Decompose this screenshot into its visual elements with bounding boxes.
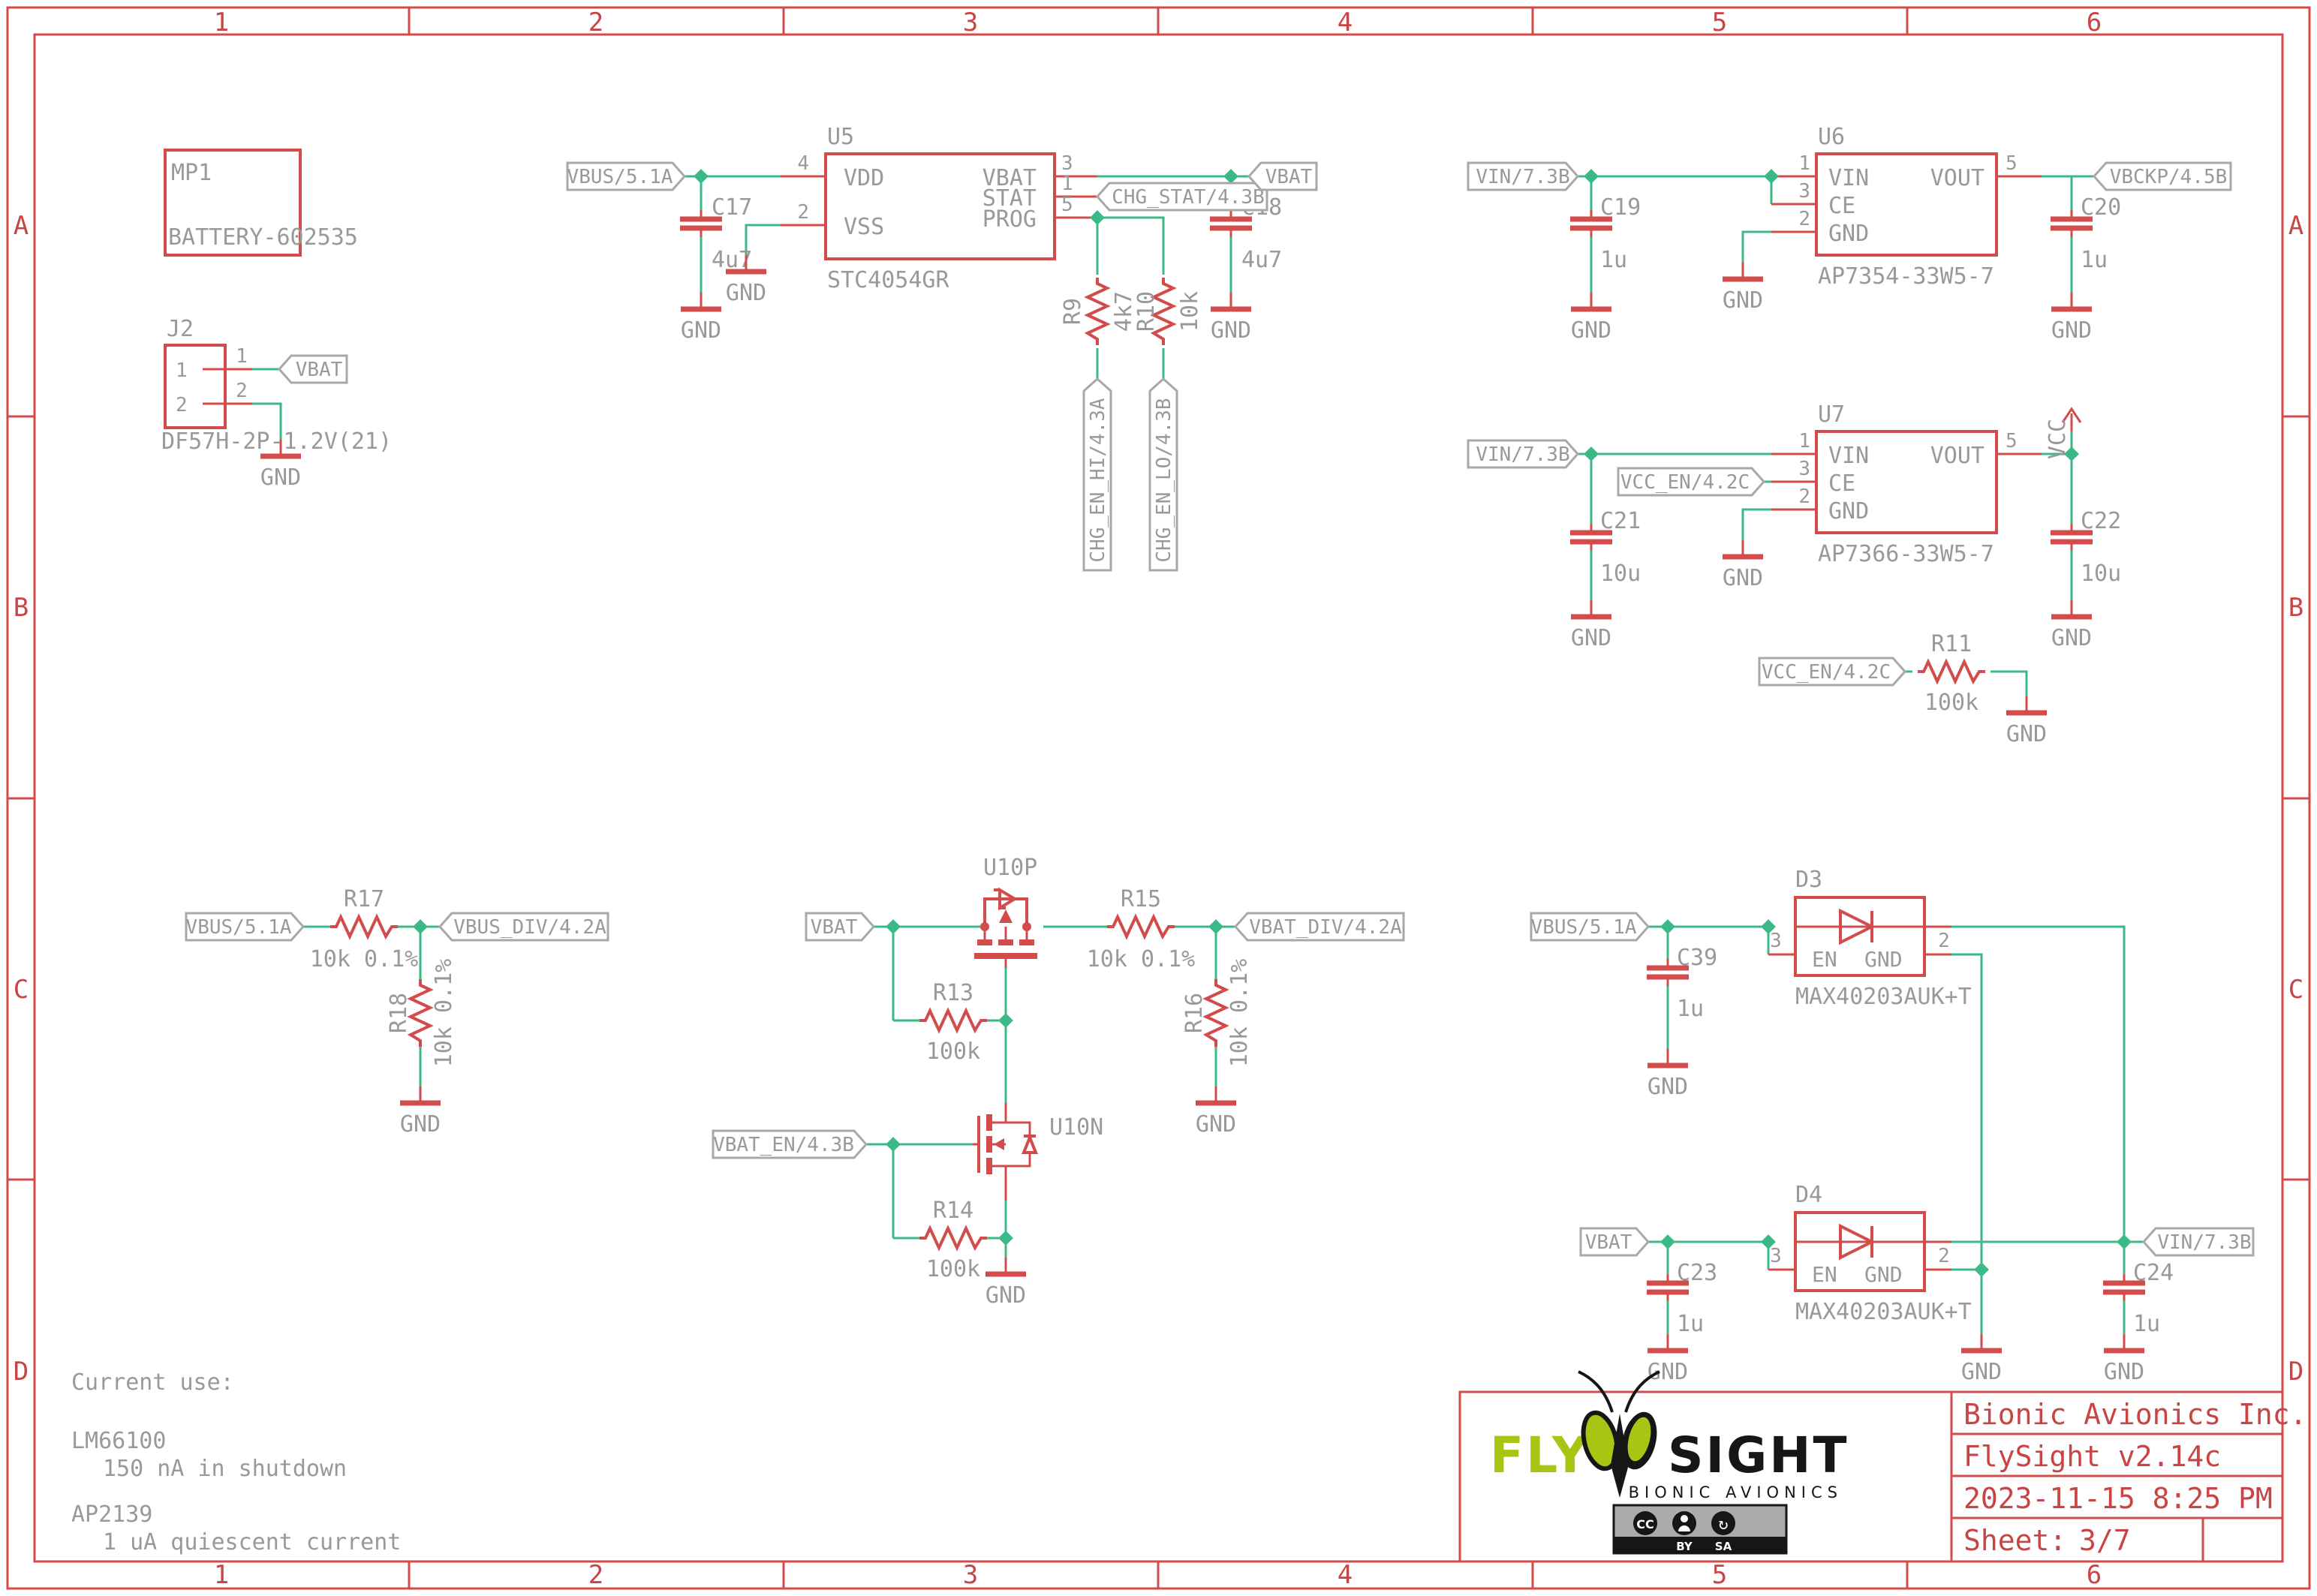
part-value: 10k 0.1% xyxy=(431,959,457,1068)
pin-name: EN xyxy=(1812,947,1837,972)
svg-text:GND: GND xyxy=(1647,1359,1688,1385)
grid-col-label: 3 xyxy=(963,8,978,38)
component-r11[interactable]: R11 100k xyxy=(1918,631,1985,716)
part-value: 10k 0.1% xyxy=(1226,959,1253,1068)
gnd-power-symbol: GND xyxy=(1571,293,1611,344)
gnd-power-symbol: GND xyxy=(2051,293,2092,344)
grid-col-label: 6 xyxy=(2087,8,2102,38)
net-flag-vin: VIN/7.3B xyxy=(2144,1228,2253,1255)
part-value: 10k xyxy=(1177,291,1203,332)
wire-segments[interactable] xyxy=(252,176,2144,1334)
pin-number: 1 xyxy=(1798,152,1810,175)
component-r10[interactable]: R10 10k xyxy=(1133,278,1203,345)
ref-designator: C19 xyxy=(1600,194,1641,221)
gnd-power-symbol: GND xyxy=(2051,600,2092,651)
net-flag-vbus-div: VBUS_DIV/4.2A xyxy=(440,913,608,940)
grid-col-label: 6 xyxy=(2087,1560,2102,1590)
part-value: STC4054GR xyxy=(827,267,949,293)
net-flag-vbat-en: VBAT_EN/4.3B xyxy=(713,1131,866,1158)
net-flag-vin: VIN/7.3B xyxy=(1468,163,1578,190)
part-value: 10k 0.1% xyxy=(1087,946,1196,972)
svg-text:GND: GND xyxy=(260,464,301,491)
pin-name: CE xyxy=(1828,193,1855,219)
pin-name: VOUT xyxy=(1930,443,1984,469)
net-flag-chg-en-lo: CHG_EN_LO/4.3B xyxy=(1150,379,1177,570)
grid-col-label: 4 xyxy=(1338,1560,1353,1590)
gnd-power-symbol: GND xyxy=(1723,540,1763,591)
grid-col-label: 1 xyxy=(214,1560,229,1590)
svg-text:VBUS/5.1A: VBUS/5.1A xyxy=(1531,916,1637,939)
svg-text:VBAT: VBAT xyxy=(1585,1231,1632,1254)
part-value: DF57H-2P-1.2V(21) xyxy=(161,428,392,455)
grid-col-label: 5 xyxy=(1712,1560,1727,1590)
part-value: 10k 0.1% xyxy=(310,946,419,972)
net-flag-vbus: VBUS/5.1A xyxy=(567,163,685,190)
ref-designator: D4 xyxy=(1795,1182,1822,1208)
grid-col-label: 2 xyxy=(588,8,603,38)
component-r17[interactable]: R17 10k 0.1% xyxy=(310,886,419,972)
mantis-icon xyxy=(1578,1372,1661,1498)
grid-col-label: 1 xyxy=(214,8,229,38)
pin-number: 3 xyxy=(1798,180,1810,203)
part-value: 4u7 xyxy=(1241,247,1282,273)
part-value: MAX40203AUK+T xyxy=(1795,984,1972,1010)
pin-name: VDD xyxy=(844,165,884,191)
svg-text:GND: GND xyxy=(1211,317,1251,344)
note-detail: 1 uA quiescent current xyxy=(103,1529,401,1555)
part-value: 1u xyxy=(1677,1311,1704,1337)
pin-name: GND xyxy=(1828,498,1869,524)
pin-number: 5 xyxy=(2006,152,2018,175)
ref-designator: R15 xyxy=(1121,886,1161,912)
ref-designator: R11 xyxy=(1931,631,1972,657)
pin-name: PROG xyxy=(982,206,1037,233)
component-d3-ideal-diode[interactable]: D3 MAX40203AUK+T EN GND 3 2 xyxy=(1770,867,1972,1010)
ref-designator: U5 xyxy=(827,124,854,150)
pin-name: VIN xyxy=(1828,443,1869,469)
grid-row-label: D xyxy=(2288,1357,2303,1387)
gnd-power-symbol: GND xyxy=(2006,696,2047,747)
ref-designator: C17 xyxy=(712,194,752,221)
ref-designator: MP1 xyxy=(171,160,212,186)
svg-text:CHG_EN_LO/4.3B: CHG_EN_LO/4.3B xyxy=(1153,398,1175,562)
pin-number: 5 xyxy=(1061,194,1073,216)
ref-designator: U6 xyxy=(1818,124,1845,150)
component-u10n-nfet[interactable]: U10N xyxy=(979,1114,1103,1193)
svg-text:GND: GND xyxy=(681,317,721,344)
gnd-power-symbol: GND xyxy=(1723,263,1763,314)
svg-text:GND: GND xyxy=(2006,721,2047,747)
svg-text:VBAT: VBAT xyxy=(1265,166,1313,188)
part-value: BATTERY-602535 xyxy=(168,224,358,251)
gnd-power-symbol: GND xyxy=(1961,1334,2002,1385)
gnd-power-symbol: GND xyxy=(2104,1334,2144,1385)
grid-col-label: 3 xyxy=(963,1560,978,1590)
pin-number: 3 xyxy=(1770,930,1782,952)
net-flag-vbckp: VBCKP/4.5B xyxy=(2094,163,2231,190)
pin-number: 2 xyxy=(1938,930,1950,952)
project-name: FlySight v2.14c xyxy=(1963,1440,2221,1473)
svg-text:VBCKP/4.5B: VBCKP/4.5B xyxy=(2110,166,2228,188)
grid-col-label: 5 xyxy=(1712,8,1727,38)
svg-text:VBUS/5.1A: VBUS/5.1A xyxy=(567,166,673,188)
grid-row-label: D xyxy=(14,1357,29,1387)
pin-number: 2 xyxy=(1798,485,1810,508)
svg-text:VCC_EN/4.2C: VCC_EN/4.2C xyxy=(1620,471,1750,494)
gnd-power-symbol: GND xyxy=(681,293,721,344)
ref-designator: U10N xyxy=(1049,1114,1103,1141)
by-label: BY xyxy=(1676,1540,1693,1553)
svg-text:VBAT_EN/4.3B: VBAT_EN/4.3B xyxy=(713,1134,854,1156)
part-value: 100k xyxy=(926,1038,980,1065)
svg-text:VBAT_DIV/4.2A: VBAT_DIV/4.2A xyxy=(1249,916,1402,939)
part-value: 10u xyxy=(2081,561,2121,587)
gnd-power-symbol: GND xyxy=(1571,600,1611,651)
gnd-power-symbol: GND xyxy=(985,1258,1026,1309)
svg-text:GND: GND xyxy=(1571,625,1611,651)
component-c21[interactable]: C21 10u xyxy=(1570,508,1641,587)
cc-by-sa-badge: CC ↻ BY SA xyxy=(1614,1505,1786,1553)
sheet-number: 3/7 xyxy=(2079,1524,2131,1557)
net-flag-vbat-div: VBAT_DIV/4.2A xyxy=(1235,913,1404,940)
pin-number: 5 xyxy=(2006,430,2018,452)
gnd-power-symbol: GND xyxy=(1647,1049,1688,1100)
svg-text:GND: GND xyxy=(1196,1111,1236,1138)
pin-name: CE xyxy=(1828,470,1855,497)
svg-text:GND: GND xyxy=(1723,565,1763,591)
logo-sight-text: SIGHT xyxy=(1668,1426,1849,1484)
by-person-icon xyxy=(1672,1511,1696,1535)
grid-row-label: B xyxy=(2288,593,2303,623)
ref-designator: R18 xyxy=(386,993,412,1033)
component-c17[interactable]: C17 4u7 xyxy=(680,194,752,273)
junction-dots xyxy=(413,169,2132,1277)
logo-fly-text: FLY xyxy=(1490,1426,1590,1484)
schematic-canvas: 1 2 3 4 5 6 1 2 3 4 5 6 A B C D A B C D xyxy=(0,0,2317,1596)
component-c24[interactable]: C24 1u xyxy=(2103,1260,2174,1337)
net-flag-chg-en-hi: CHG_EN_HI/4.3A xyxy=(1084,379,1111,570)
svg-text:GND: GND xyxy=(2051,625,2092,651)
svg-text:GND: GND xyxy=(400,1111,441,1138)
svg-text:CHG_EN_HI/4.3A: CHG_EN_HI/4.3A xyxy=(1087,398,1109,562)
pin-name: 2 xyxy=(176,394,188,416)
pin-number: 1 xyxy=(1798,430,1810,452)
svg-text:GND: GND xyxy=(2104,1359,2144,1385)
component-c23[interactable]: C23 1u xyxy=(1647,1260,1717,1337)
component-r15[interactable]: R15 10k 0.1% xyxy=(1087,886,1196,972)
gnd-power-symbol: GND xyxy=(1211,293,1251,344)
cc-icon-text: CC xyxy=(1636,1517,1653,1531)
component-c19[interactable]: C19 1u xyxy=(1570,194,1641,273)
pin-name: GND xyxy=(1864,1262,1903,1287)
svg-text:GND: GND xyxy=(2051,317,2092,344)
component-mp1-battery[interactable]: MP1 BATTERY-602535 xyxy=(165,150,358,255)
ref-designator: C23 xyxy=(1677,1260,1717,1286)
component-u7-ldo[interactable]: U7 AP7366-33W5-7 VIN CE GND VOUT 1 3 2 5 xyxy=(1798,401,2017,567)
svg-text:VBUS_DIV/4.2A: VBUS_DIV/4.2A xyxy=(453,916,606,939)
grid-col-label: 2 xyxy=(588,1560,603,1590)
note-part: AP2139 xyxy=(71,1501,152,1528)
ref-designator: C22 xyxy=(2081,508,2121,534)
notes-block: Current use: LM66100 150 nA in shutdown … xyxy=(71,1369,401,1555)
ref-designator: J2 xyxy=(167,316,194,342)
grid-row-label: A xyxy=(14,211,29,241)
svg-text:GND: GND xyxy=(1571,317,1611,344)
net-label: VCC xyxy=(2045,419,2071,459)
net-flag-vbus: VBUS/5.1A xyxy=(1531,913,1648,940)
net-flag-vcc-en: VCC_EN/4.2C xyxy=(1759,658,1905,685)
component-d4-ideal-diode[interactable]: D4 MAX40203AUK+T EN GND 3 2 xyxy=(1770,1182,1972,1325)
ref-designator: R16 xyxy=(1181,993,1208,1033)
part-value: 1u xyxy=(2081,247,2108,273)
grid-col-label: 4 xyxy=(1338,8,1353,38)
pin-number: 2 xyxy=(236,380,248,402)
component-u5-charger[interactable]: U5 STC4054GR VDD VSS VBAT STAT PROG 4 2 … xyxy=(797,124,1073,293)
svg-text:GND: GND xyxy=(1647,1074,1688,1100)
part-value: 1u xyxy=(1600,247,1627,273)
ref-designator: R10 xyxy=(1133,291,1160,332)
title-block: Bionic Avionics Inc. FlySight v2.14c 202… xyxy=(1460,1372,2307,1561)
pin-name: 1 xyxy=(176,359,188,382)
pin-number: 3 xyxy=(1061,152,1073,175)
svg-text:GND: GND xyxy=(1961,1359,2002,1385)
ref-designator: U7 xyxy=(1818,401,1845,428)
pin-name: VOUT xyxy=(1930,165,1984,191)
grid-row-label: A xyxy=(2288,211,2303,241)
pin-name: GND xyxy=(1864,947,1903,972)
gnd-power-symbol: GND xyxy=(400,1087,441,1138)
net-flag-vin: VIN/7.3B xyxy=(1468,440,1578,467)
sheet-label: Sheet: xyxy=(1963,1524,2066,1557)
ref-designator: C39 xyxy=(1677,945,1717,971)
ref-designator: C24 xyxy=(2133,1260,2174,1286)
svg-text:VCC_EN/4.2C: VCC_EN/4.2C xyxy=(1762,661,1891,684)
component-c20[interactable]: C20 1u xyxy=(2051,194,2121,273)
part-value: AP7366-33W5-7 xyxy=(1818,541,1994,567)
net-flag-vbat: VBAT xyxy=(279,356,347,383)
net-flag-vbus: VBUS/5.1A xyxy=(186,913,303,940)
part-value: 1u xyxy=(2133,1311,2160,1337)
gnd-power-symbol: GND xyxy=(1647,1334,1688,1385)
part-value: 100k xyxy=(926,1256,980,1282)
svg-text:VIN/7.3B: VIN/7.3B xyxy=(1476,443,1569,466)
svg-text:VBAT: VBAT xyxy=(811,916,858,939)
sa-arrow-glyph: ↻ xyxy=(1718,1515,1728,1534)
svg-text:CHG_STAT/4.3B: CHG_STAT/4.3B xyxy=(1112,186,1265,209)
svg-text:GND: GND xyxy=(726,280,766,306)
grid-row-label: B xyxy=(14,593,29,623)
component-r14[interactable]: R14 100k xyxy=(919,1198,987,1282)
pin-name: EN xyxy=(1812,1262,1837,1287)
ref-designator: U10P xyxy=(983,855,1037,881)
ref-designator: C20 xyxy=(2081,194,2121,221)
ref-designator: R13 xyxy=(933,980,973,1006)
net-flag-vbat: VBAT xyxy=(806,913,874,940)
component-r13[interactable]: R13 100k xyxy=(919,980,987,1065)
grid-row-label: C xyxy=(14,975,29,1005)
part-value: MAX40203AUK+T xyxy=(1795,1299,1972,1325)
sa-label: SA xyxy=(1715,1540,1732,1553)
pin-number: 1 xyxy=(236,345,248,368)
grid-row-label: C xyxy=(2288,975,2303,1005)
part-value: 100k xyxy=(1924,690,1978,716)
net-flag-vbat: VBAT xyxy=(1249,163,1316,190)
svg-text:GND: GND xyxy=(1723,287,1763,314)
svg-text:VIN/7.3B: VIN/7.3B xyxy=(1476,166,1569,188)
pin-number: 2 xyxy=(1798,208,1810,230)
gnd-power-symbol: GND xyxy=(1196,1087,1236,1138)
svg-text:VBUS/5.1A: VBUS/5.1A xyxy=(186,916,292,939)
gnd-symbols[interactable]: GND GND GND GND GND GND GND GND GND GND … xyxy=(260,255,2144,1385)
pin-number: 2 xyxy=(797,201,809,224)
net-flag-vbat: VBAT xyxy=(1581,1228,1648,1255)
pin-number: 3 xyxy=(1798,458,1810,480)
pin-name: GND xyxy=(1828,221,1869,247)
note-detail: 150 nA in shutdown xyxy=(103,1456,347,1482)
ref-designator: R9 xyxy=(1060,298,1086,325)
component-c22[interactable]: C22 10u xyxy=(2051,508,2121,587)
part-value: 10u xyxy=(1600,561,1641,587)
net-flag-vcc-en: VCC_EN/4.2C xyxy=(1618,468,1764,495)
pin-name: VIN xyxy=(1828,165,1869,191)
ref-designator: R14 xyxy=(933,1198,973,1224)
ref-designator: R17 xyxy=(344,886,384,912)
pin-number: 4 xyxy=(797,152,809,175)
pin-number: 1 xyxy=(1061,173,1073,195)
component-r9[interactable]: R9 4k7 xyxy=(1060,278,1137,345)
pin-leads xyxy=(225,176,2042,1270)
net-flag-chg-stat: CHG_STAT/4.3B xyxy=(1097,183,1267,210)
pin-name: VSS xyxy=(844,214,884,240)
ref-designator: D3 xyxy=(1795,867,1822,893)
component-j2-connector[interactable]: J2 1 2 1 2 DF57H-2P-1.2V(21) xyxy=(161,316,392,455)
schematic-sheet: 1 2 3 4 5 6 1 2 3 4 5 6 A B C D A B C D xyxy=(0,0,2317,1596)
logo-tagline: BIONIC AVIONICS xyxy=(1629,1483,1843,1501)
company-name: Bionic Avionics Inc. xyxy=(1963,1398,2307,1431)
ref-designator: C21 xyxy=(1600,508,1641,534)
component-u10p-pfet[interactable]: U10P xyxy=(974,855,1037,956)
component-u6-ldo[interactable]: U6 AP7354-33W5-7 VIN CE GND VOUT 1 3 2 5 xyxy=(1798,124,2017,290)
svg-text:VIN/7.3B: VIN/7.3B xyxy=(2157,1231,2251,1254)
pin-number: 3 xyxy=(1770,1245,1782,1267)
date-stamp: 2023-11-15 8:25 PM xyxy=(1963,1482,2273,1515)
note-part: LM66100 xyxy=(71,1428,166,1454)
svg-text:GND: GND xyxy=(985,1282,1026,1309)
pin-number: 2 xyxy=(1938,1245,1950,1267)
component-c39[interactable]: C39 1u xyxy=(1647,945,1717,1022)
part-value: 1u xyxy=(1677,996,1704,1022)
part-value: AP7354-33W5-7 xyxy=(1818,263,1994,290)
notes-title: Current use: xyxy=(71,1369,234,1396)
svg-text:VBAT: VBAT xyxy=(296,359,343,381)
